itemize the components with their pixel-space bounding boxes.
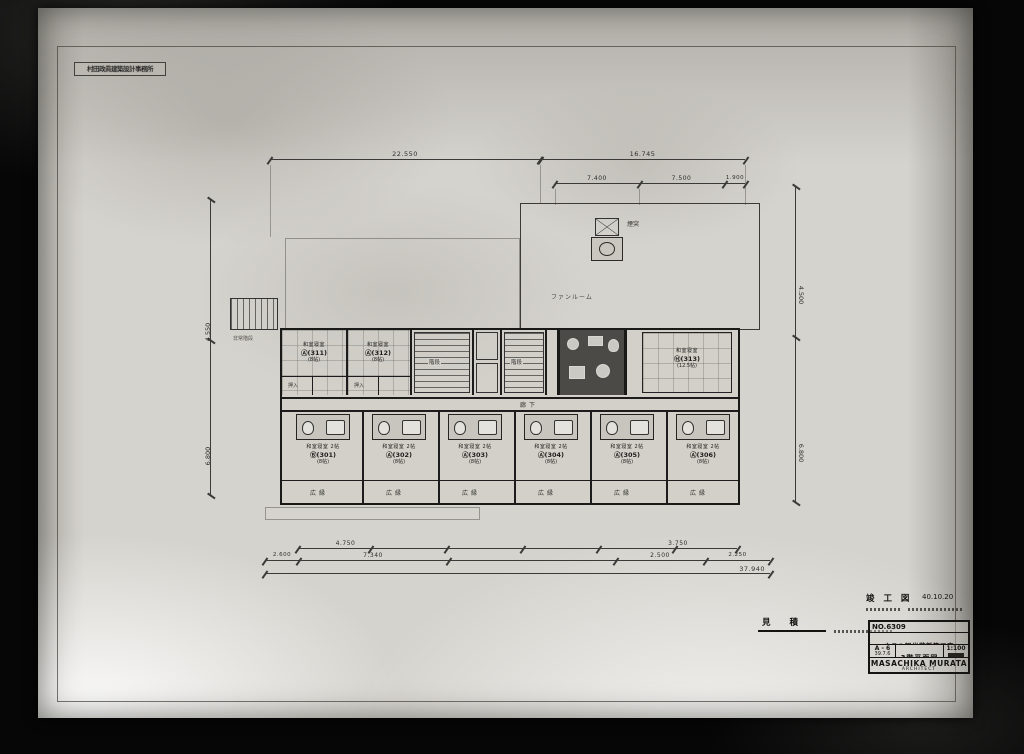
approval-smudge [948,653,964,657]
porch-outline [265,507,480,520]
chimney-box [591,237,623,261]
fire-stair [230,298,278,330]
bath-pod [600,414,654,440]
completion-label: 竣 工 図 [866,592,912,604]
sheet-date: 39.7.6 [870,652,895,657]
drawing-title: 3階平面図 [901,654,939,658]
sheet-no-cell: A - 6 39.7.6 [870,645,896,657]
extension-line [540,165,541,203]
room-label: 和室寝室 Ⓐ(312) (8帖) [348,342,408,363]
illegible-revision-note [866,608,900,611]
completion-date: 40.10.20 [922,593,953,601]
fire-stair-label: 非常階段 [233,335,253,342]
dim-label: 2.500 [615,552,705,559]
room-label: 和室寝室 Ⓐ(311) (8帖) [283,342,345,363]
title-block-box: NO.6309 ホテル観光荘新築工事 A - 6 39.7.6 3階平面図 1:… [868,620,970,674]
service-room [476,332,498,360]
extension-line [270,165,271,237]
bath-pod [448,414,502,440]
chimney-flue [599,242,615,256]
dim-line-right: 4.500 6.800 [795,187,796,502]
stair-label: 階段 [428,358,441,366]
dim-line-top-left: 22.550 [270,159,540,160]
architect-title: ARCHITECT [870,668,968,672]
roof-outline-left [285,238,520,330]
dim-line-top-sub: 7.400 7.500 1.900 [555,183,745,184]
room-label: 和室寝室 2帖Ⓐ(306)(8帖) [668,444,738,465]
closet-label: 押入 [288,382,298,389]
dim-label: 2.250 [705,552,770,558]
dim-label: 16.745 [540,150,745,158]
room-label: 和室寝室 2帖Ⓐ(302)(8帖) [364,444,434,465]
dim-line-bottom-total: 37.940 [265,573,770,574]
dim-label: 4.500 [797,274,805,316]
bath-pod [296,414,350,440]
drawing-sheet: 村田政眞建築設計事務所 22.550 16.745 7.400 7.500 1.… [38,8,973,718]
dim-line-bottom-2: 2.600 7.340 2.500 2.250 [265,560,770,561]
room-label: 和室寝室 Ⓗ(313) (12.5帖) [640,348,734,369]
drawing-number: NO.6309 [870,622,968,632]
dim-label: 6.800 [797,432,805,474]
chimney-label: 煙突 [627,219,639,228]
dim-label: 4.550 [204,311,212,353]
dim-label: 22.550 [270,150,540,158]
bath-pod [676,414,730,440]
vent-x-box [595,218,619,236]
dim-label: 7.400 [555,175,639,182]
veranda-label: 広縁 [690,488,708,497]
dim-label: 4.750 [298,540,393,547]
room-label: 和室寝室 2帖Ⓐ(304)(8帖) [516,444,586,465]
dim-label: 1.900 [710,175,760,181]
estimate-label: 見 積 [762,616,806,628]
room-label: 和室寝室 2帖Ⓐ(303)(8帖) [440,444,510,465]
service-room [476,363,498,393]
room-label: 和室寝室 2帖Ⓑ(301)(8帖) [288,444,358,465]
staircase [414,332,470,393]
bath-pod [524,414,578,440]
veranda-label: 広縁 [614,488,632,497]
architect-row: MASACHIKA MURATA ARCHITECT [870,659,968,674]
title-block: 竣 工 図 40.10.20 NO.6309 ホテル観光荘新築工事 A - 6 … [860,590,976,702]
drawing-number-row: NO.6309 [870,622,968,633]
extension-line [745,165,746,205]
veranda-label: 広縁 [462,488,480,497]
room-label: 和室寝室 2帖Ⓐ(305)(8帖) [592,444,662,465]
building-outline: 和室寝室 Ⓐ(311) (8帖) 和室寝室 Ⓐ(312) (8帖) 押入 押入 … [280,328,740,505]
scan-background: 村田政眞建築設計事務所 22.550 16.745 7.400 7.500 1.… [0,0,1024,754]
illegible-revision-note [908,608,962,611]
bath-pod [372,414,426,440]
closet-label: 押入 [354,382,364,389]
floor-plan: 22.550 16.745 7.400 7.500 1.900 煙突 ファンルー… [195,145,815,595]
dim-line-left: 4.550 6.800 [210,200,211,495]
roof-outline-right [520,203,760,330]
project-row: ホテル観光荘新築工事 [870,633,968,645]
fan-room-label: ファンルーム [551,292,593,301]
office-stamp: 村田政眞建築設計事務所 [74,62,166,76]
drawing-title-cell: 3階平面図 [896,645,944,657]
corridor-label: 廊下 [520,400,538,409]
scale-cell: 1:100 [944,645,968,657]
dim-label: 3.750 [628,540,728,547]
veranda-label: 広縁 [310,488,328,497]
dim-label: 7.340 [298,552,448,559]
dim-label: 37.940 [645,565,765,573]
dim-line-top-right: 16.745 [540,159,745,160]
sheet-info-row: A - 6 39.7.6 3階平面図 1:100 [870,645,968,658]
veranda-label: 広縁 [538,488,556,497]
dim-label: 6.800 [204,435,212,477]
dim-line-bottom-1: 4.750 3.750 [298,548,737,549]
stair-label: 階段 [510,358,523,366]
veranda-label: 広縁 [386,488,404,497]
drawing-scale: 1:100 [944,646,968,652]
bath-block [557,330,627,395]
estimate-underline [758,630,826,632]
